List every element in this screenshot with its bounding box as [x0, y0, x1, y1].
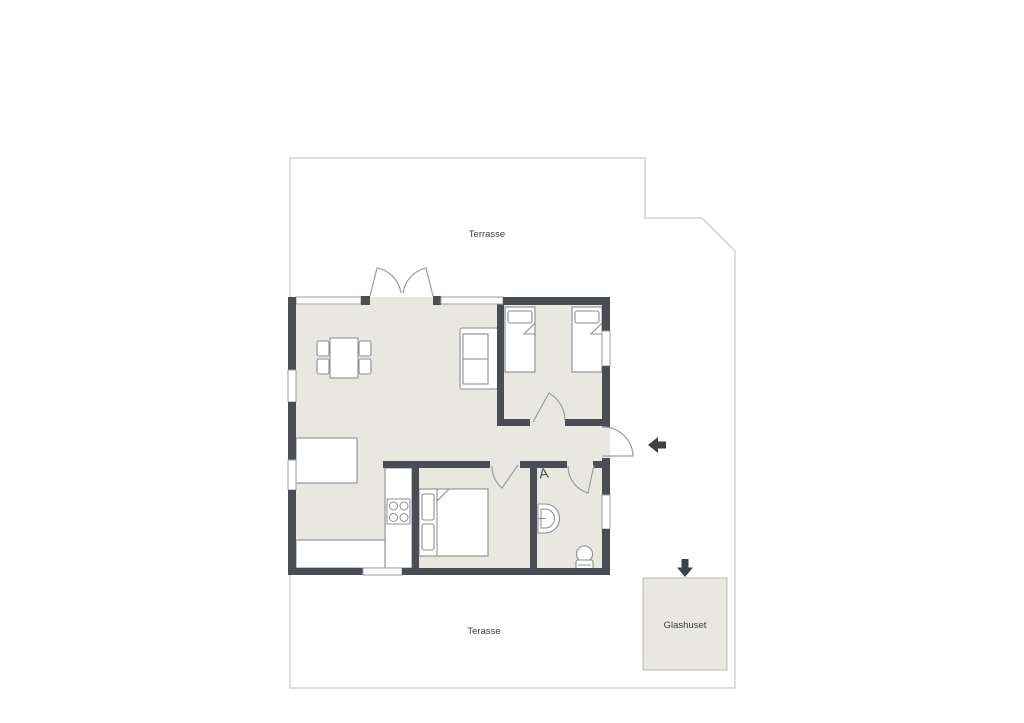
floorplan-drawing — [0, 0, 1024, 723]
window — [288, 460, 296, 490]
window — [296, 297, 361, 304]
attic-ladder-icon: A — [538, 465, 549, 480]
entry-threshold — [602, 427, 610, 458]
dining-chair — [317, 341, 329, 356]
single-bed — [505, 307, 535, 372]
floorplan-canvas: Terrasse Terasse Glashuset A — [0, 0, 1024, 723]
french-door-right-leaf — [403, 268, 433, 296]
entry-arrow-icon — [648, 437, 666, 453]
window — [602, 331, 610, 366]
pillow — [422, 524, 434, 550]
french-door-threshold — [370, 297, 433, 304]
toilet-icon — [576, 546, 593, 571]
window — [602, 495, 610, 529]
pillow — [422, 494, 434, 520]
window — [363, 568, 402, 575]
dining-chair — [317, 359, 329, 374]
french-door-left-leaf — [370, 268, 401, 296]
dining-chair — [359, 341, 371, 356]
dining-chair — [359, 359, 371, 374]
pillow — [508, 311, 532, 323]
glashuset-entry-arrow-icon — [677, 559, 693, 577]
house — [288, 268, 633, 575]
sofa — [460, 328, 498, 389]
glashuset-label: Glashuset — [664, 620, 707, 631]
pillow — [575, 311, 599, 323]
window — [441, 297, 503, 304]
dining-table — [330, 338, 358, 378]
terrace-top-label: Terrasse — [469, 229, 505, 240]
terrace-bottom-label: Terasse — [467, 626, 500, 637]
double-bed — [419, 489, 488, 556]
sideboard — [296, 438, 357, 483]
single-bed — [572, 307, 602, 372]
window — [288, 370, 296, 402]
